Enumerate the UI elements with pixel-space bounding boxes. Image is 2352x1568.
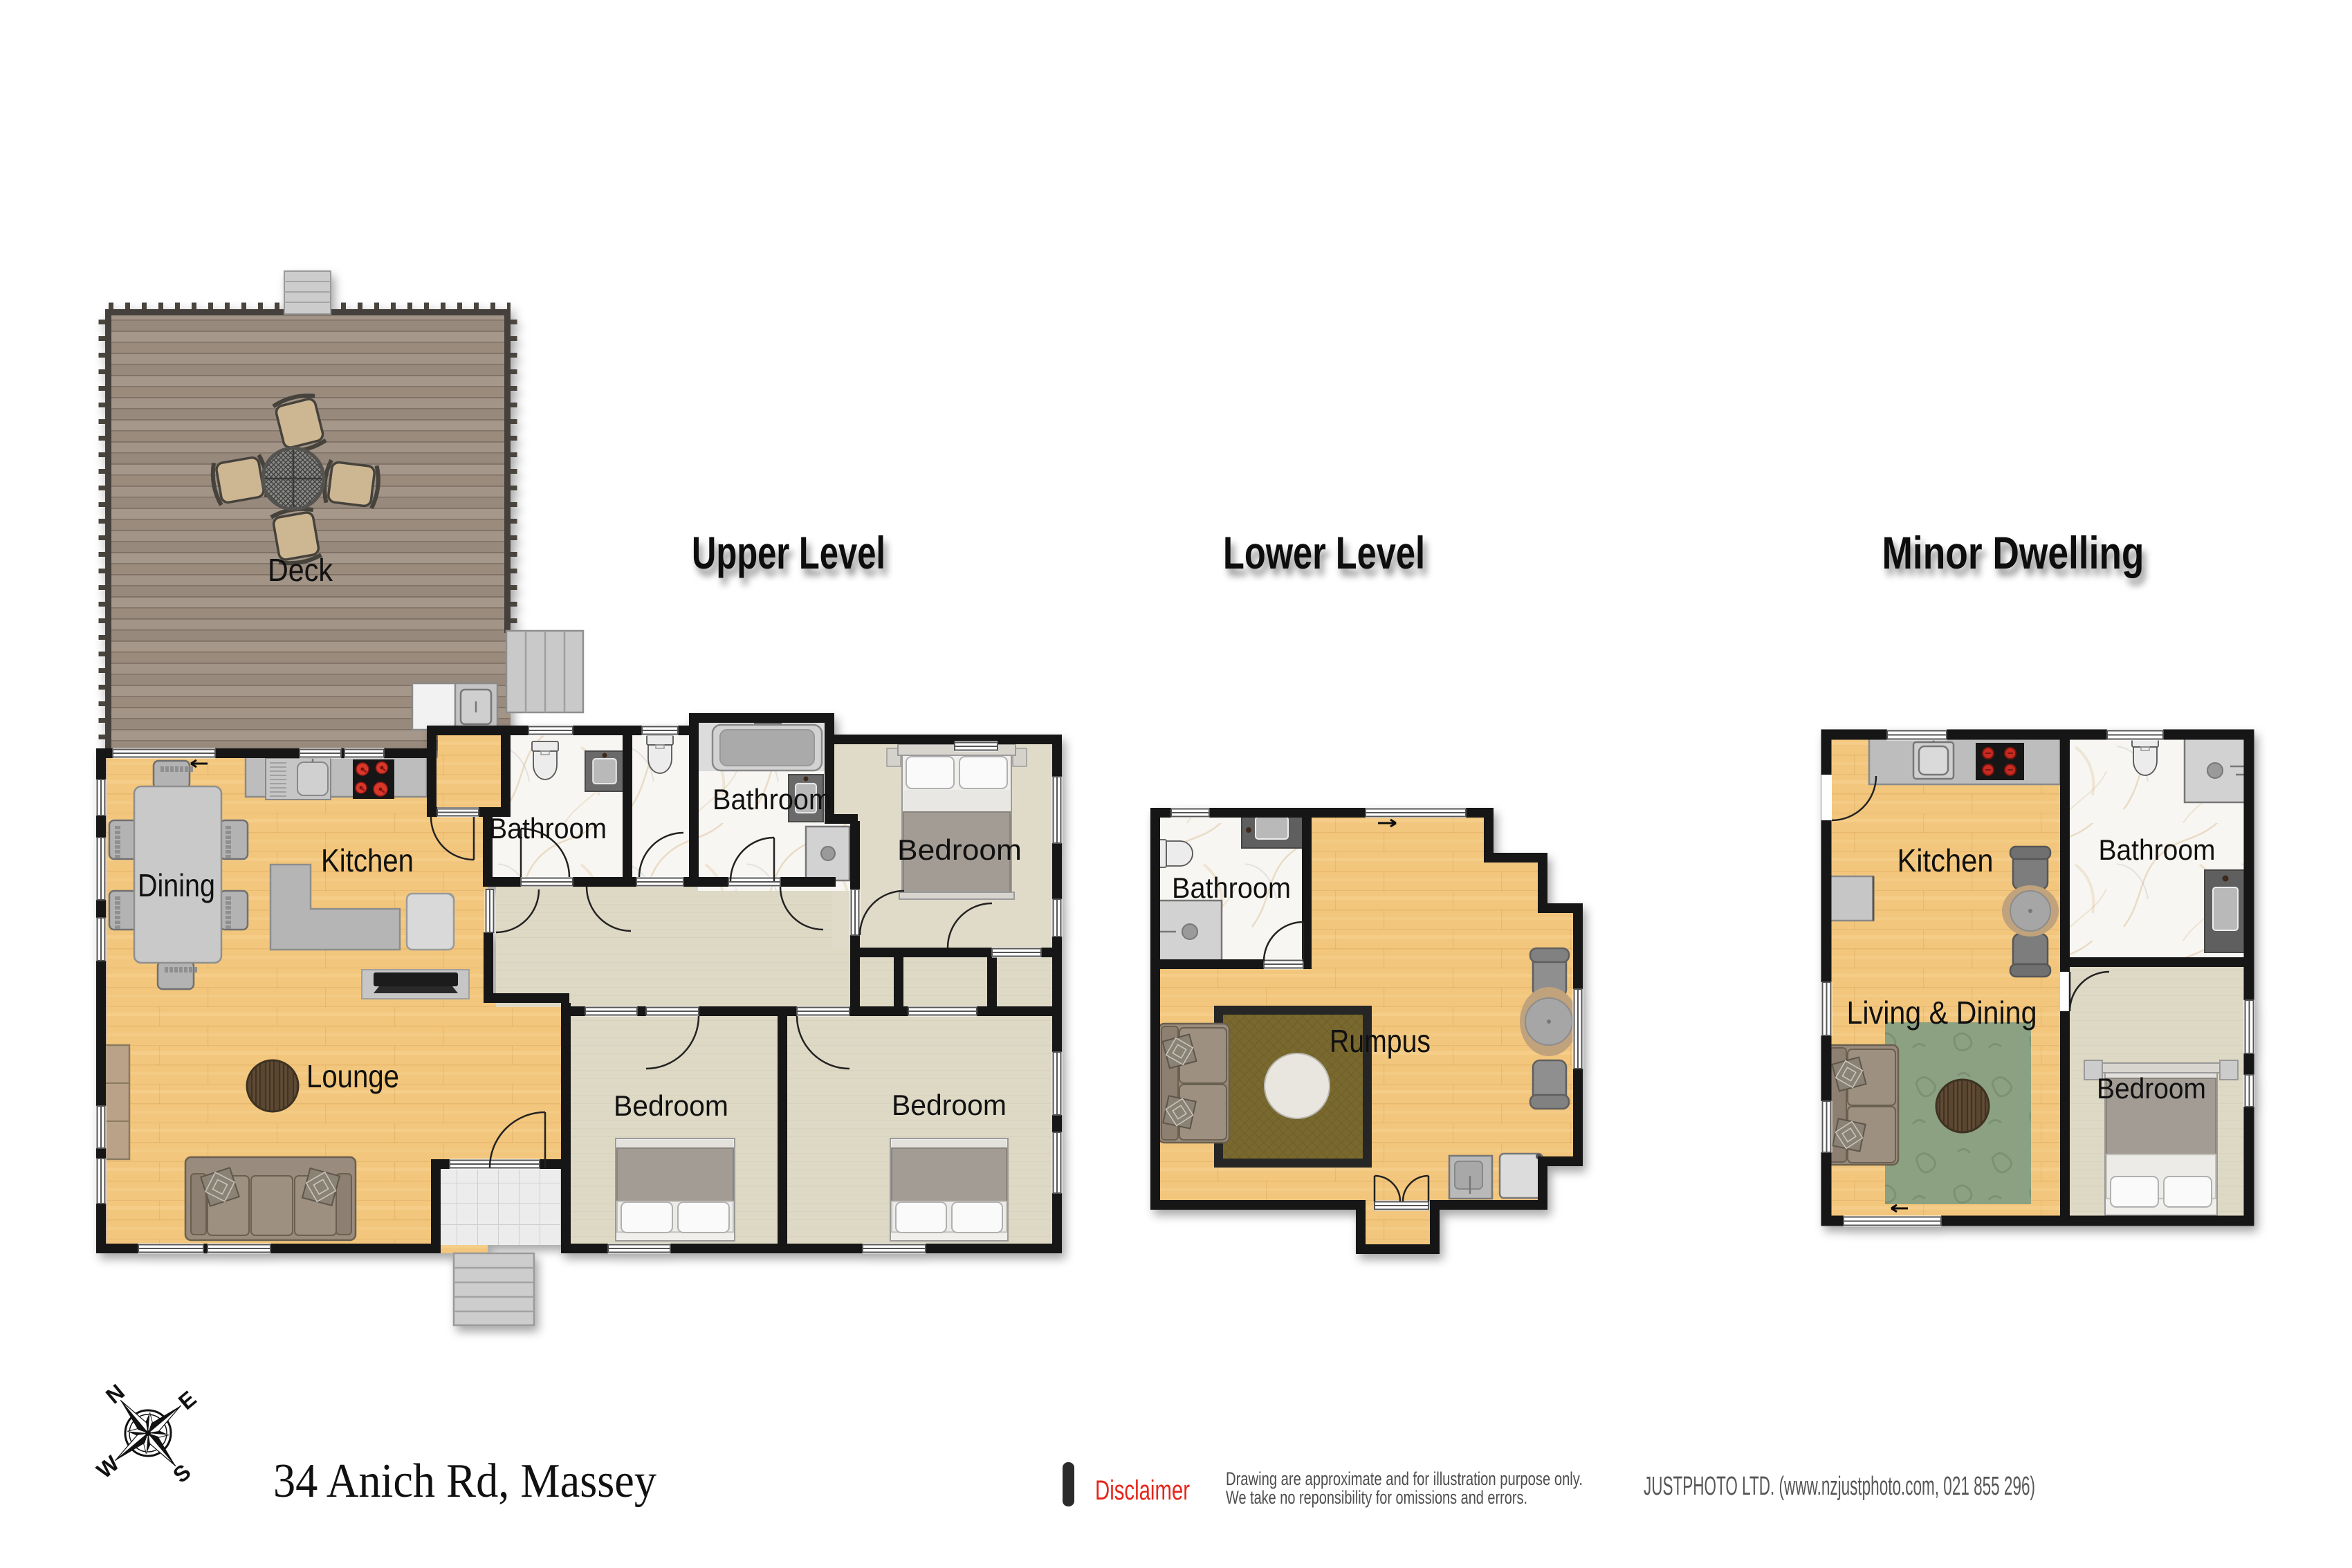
svg-text:Bedroom: Bedroom — [2097, 1072, 2206, 1105]
svg-text:Bedroom: Bedroom — [897, 833, 1022, 866]
svg-text:Lounge: Lounge — [306, 1058, 399, 1094]
svg-text:Disclaimer: Disclaimer — [1095, 1475, 1190, 1506]
svg-text:Bedroom: Bedroom — [614, 1089, 728, 1122]
svg-text:34 Anich Rd, Massey: 34 Anich Rd, Massey — [273, 1455, 656, 1508]
svg-text:Deck: Deck — [268, 552, 333, 588]
svg-text:Bathroom: Bathroom — [1172, 871, 1291, 904]
svg-text:Minor Dwelling: Minor Dwelling — [1882, 527, 2144, 578]
svg-text:Upper Level: Upper Level — [692, 527, 885, 578]
svg-text:Kitchen: Kitchen — [321, 842, 414, 878]
svg-text:Kitchen: Kitchen — [1898, 842, 1994, 878]
svg-text:Bathroom: Bathroom — [713, 783, 832, 815]
svg-text:Drawing are approximate and fo: Drawing are approximate and for illustra… — [1226, 1468, 1583, 1489]
svg-text:Bathroom: Bathroom — [489, 812, 607, 845]
svg-text:Dining: Dining — [138, 867, 215, 903]
svg-text:We take no reponsibility for o: We take no reponsibility for omissions a… — [1226, 1487, 1527, 1508]
svg-text:Living & Dining: Living & Dining — [1847, 995, 2037, 1031]
svg-text:Bedroom: Bedroom — [892, 1089, 1007, 1121]
svg-text:Bathroom: Bathroom — [2099, 833, 2216, 866]
svg-text:Lower Level: Lower Level — [1223, 527, 1425, 578]
svg-text:Rumpus: Rumpus — [1330, 1023, 1431, 1059]
svg-text:JUSTPHOTO LTD. (www.nzjustphot: JUSTPHOTO LTD. (www.nzjustphoto.com, 021… — [1644, 1472, 2035, 1501]
